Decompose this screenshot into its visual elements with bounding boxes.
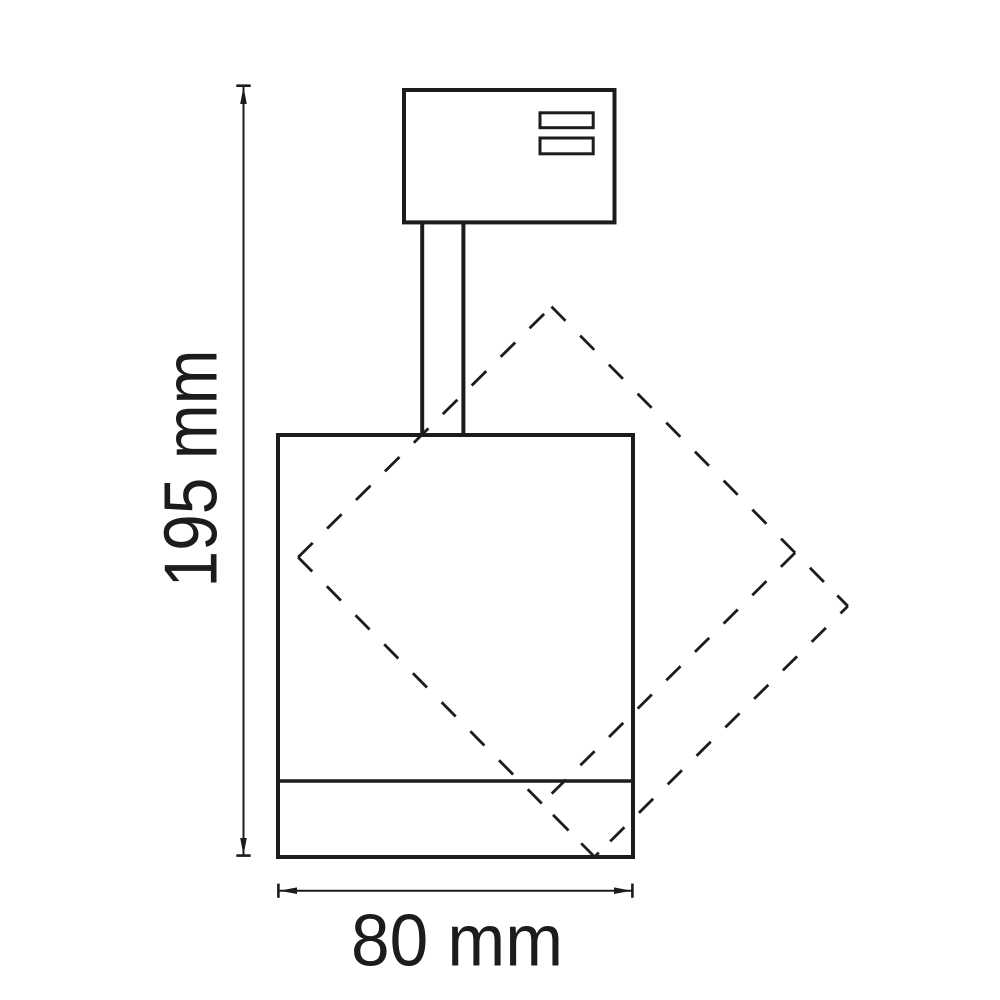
svg-text:80 mm: 80 mm	[351, 901, 563, 982]
svg-text:195 mm: 195 mm	[149, 350, 233, 588]
